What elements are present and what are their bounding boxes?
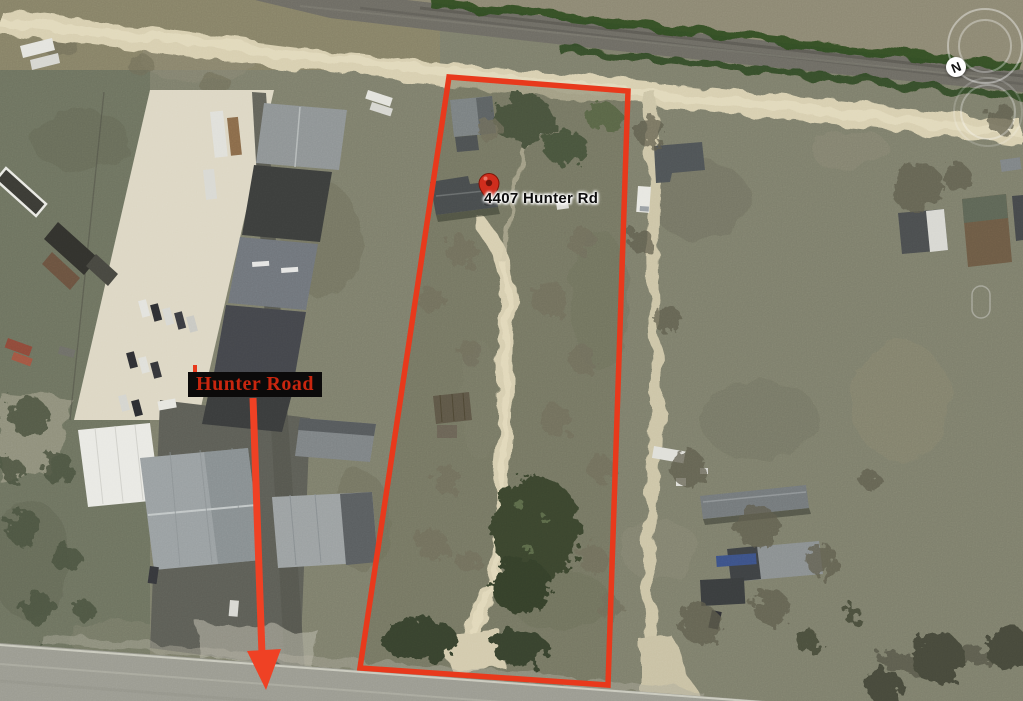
property-address-label: 4407 Hunter Rd	[484, 190, 598, 207]
road-name-text: Hunter Road	[196, 373, 314, 396]
aerial-listing-photo: 4407 Hunter Rd Hunter Road N	[0, 0, 1023, 701]
photo-grain	[0, 0, 1023, 701]
satellite-imagery	[0, 0, 1023, 701]
road-name-label: Hunter Road	[188, 372, 322, 397]
